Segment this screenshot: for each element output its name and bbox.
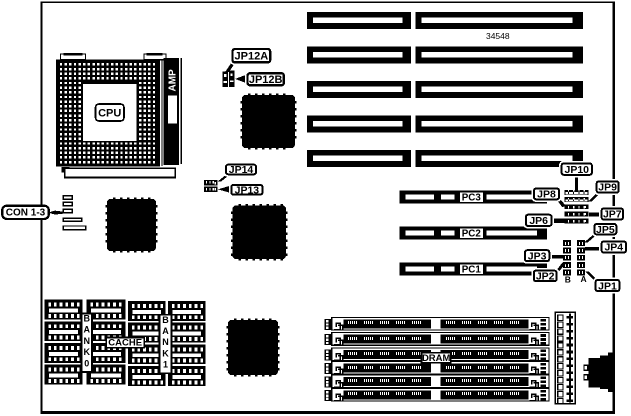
svg-text:1: 1 [163,360,168,370]
svg-text:JP10: JP10 [564,164,589,176]
svg-text:0: 0 [84,358,89,368]
svg-text:DRAM: DRAM [422,353,451,364]
svg-text:PC1: PC1 [462,264,482,275]
svg-text:JP14: JP14 [229,164,254,176]
svg-text:A: A [162,326,169,336]
svg-text:K: K [162,348,169,358]
svg-text:JP5: JP5 [596,224,615,236]
svg-text:JP6: JP6 [529,215,548,227]
svg-text:JP3: JP3 [528,250,547,262]
svg-text:K: K [84,347,91,357]
svg-text:N: N [84,336,91,346]
svg-text:JP13: JP13 [235,184,260,196]
svg-text:CACHE: CACHE [108,338,142,349]
svg-text:JP12B: JP12B [249,74,283,86]
svg-text:N: N [162,337,169,347]
svg-text:B: B [162,315,169,325]
svg-text:JP12A: JP12A [235,50,269,62]
svg-text:A: A [581,274,587,284]
svg-text:CPU: CPU [98,107,121,119]
svg-text:34548: 34548 [486,31,510,41]
svg-text:B: B [84,314,91,324]
svg-text:JP7: JP7 [603,209,622,221]
svg-text:JP9: JP9 [598,182,617,194]
svg-text:JP4: JP4 [604,242,623,254]
svg-text:B: B [565,275,571,285]
svg-text:PC3: PC3 [462,192,482,203]
svg-text:AMP: AMP [167,69,178,92]
svg-text:JP8: JP8 [537,189,556,201]
svg-text:JP1: JP1 [598,280,617,292]
svg-text:CON 1-3: CON 1-3 [6,207,46,218]
svg-text:A: A [84,325,91,335]
svg-text:JP2: JP2 [536,271,555,283]
svg-text:PC2: PC2 [462,228,482,239]
